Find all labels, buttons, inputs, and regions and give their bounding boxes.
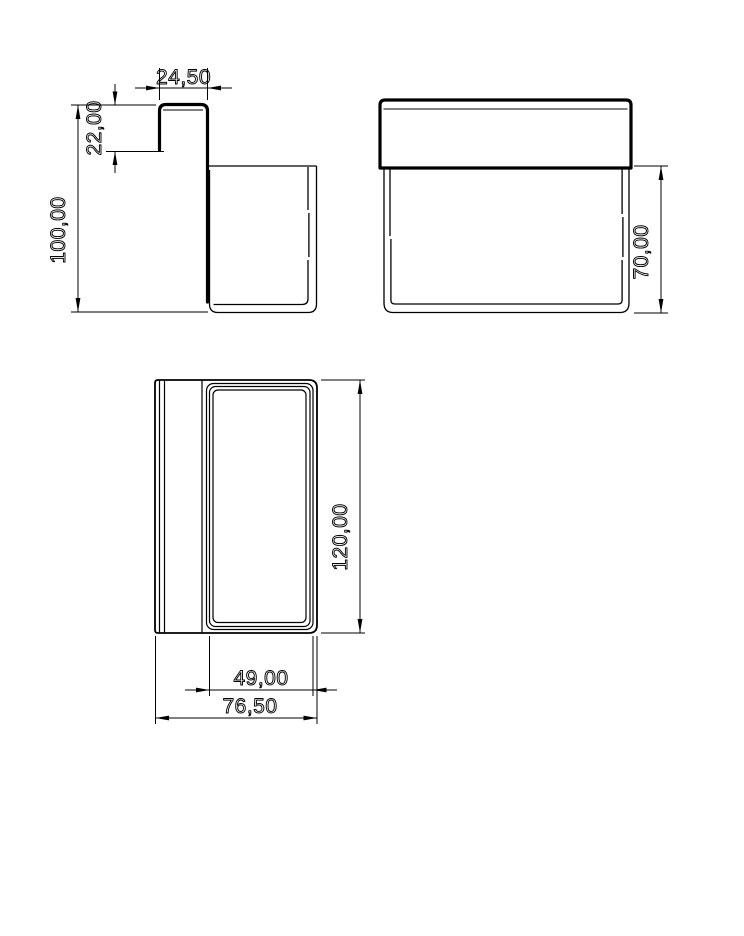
- front-view-inner-walls: [390, 169, 623, 304]
- technical-drawing-canvas: 24,50 22,00 100,00: [0, 0, 744, 936]
- dim-hook-width-value: 24,50: [156, 66, 211, 89]
- front-view-body-outline: [384, 169, 629, 313]
- dim-overall-height-arrow-bottom: [76, 298, 81, 312]
- dim-length-arrow-top: [358, 380, 363, 394]
- dim-hook-width: 24,50: [135, 66, 232, 100]
- top-view: 120,00 49,00 76,50: [155, 380, 365, 724]
- side-view-container-outline: [209, 166, 317, 313]
- dim-opening-depth-arrow-left: [196, 688, 210, 693]
- dim-length: 120,00: [321, 380, 365, 633]
- side-view-hook-profile: [160, 105, 208, 303]
- dim-length-value: 120,00: [329, 503, 352, 570]
- top-view-rim-outer: [207, 384, 314, 630]
- dim-hook-drop-arrow-bottom: [113, 152, 118, 166]
- dim-opening-depth: 49,00: [185, 636, 337, 696]
- drawing-sheet: 24,50 22,00 100,00: [0, 0, 744, 936]
- dim-hook-drop-value: 22,00: [83, 100, 106, 155]
- top-view-rim-inner: [213, 390, 306, 623]
- dim-overall-depth-arrow-left: [156, 716, 170, 721]
- dim-overall-height-arrow-top: [76, 105, 81, 119]
- dim-hook-drop: 22,00: [71, 84, 164, 173]
- dim-opening-depth-arrow-right: [313, 688, 327, 693]
- dim-body-height-value: 70,00: [630, 224, 653, 279]
- dim-body-height: 70,00: [630, 166, 668, 313]
- front-view-hook-band: [380, 100, 631, 168]
- dim-overall-height: 100,00: [47, 105, 208, 312]
- front-view: 70,00: [380, 100, 668, 313]
- dim-overall-height-value: 100,00: [47, 196, 70, 263]
- dim-opening-depth-value: 49,00: [233, 667, 288, 690]
- side-view: 24,50 22,00 100,00: [47, 66, 317, 313]
- dim-overall-depth-arrow-right: [304, 716, 318, 721]
- dim-length-arrow-bottom: [358, 619, 363, 633]
- side-view-inner-wall: [214, 167, 309, 305]
- top-view-hook-band-lines: [160, 381, 203, 633]
- dim-body-height-arrow-bottom: [659, 299, 664, 313]
- dim-hook-drop-arrow-top: [113, 92, 118, 106]
- dim-body-height-arrow-top: [659, 166, 664, 180]
- top-view-rim-middle: [210, 387, 311, 627]
- dim-overall-depth-value: 76,50: [222, 695, 277, 718]
- top-view-outline: [155, 380, 317, 633]
